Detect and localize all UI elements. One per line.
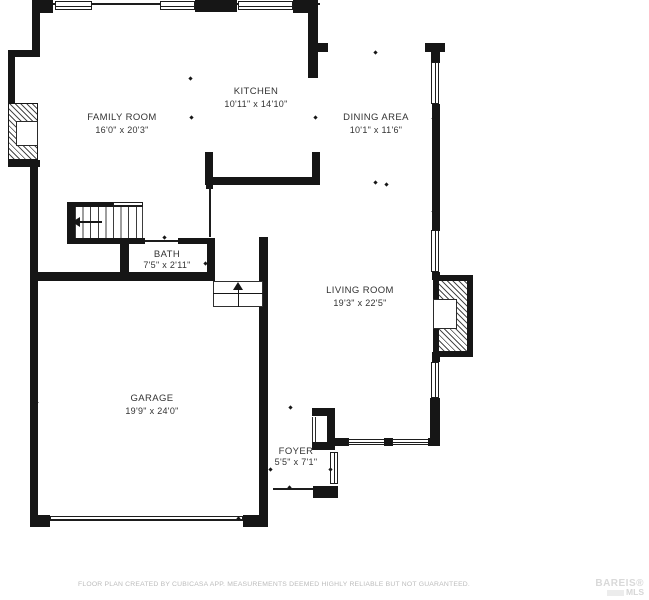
wall-stairs-bottom: [67, 238, 145, 244]
disclaimer-text: FLOOR PLAN CREATED BY CUBICASA APP. MEAS…: [78, 581, 470, 588]
room-name: GARAGE: [125, 392, 178, 405]
room-label-living-room: LIVING ROOM 19'3" x 22'5": [326, 284, 394, 310]
window-right-1: [431, 62, 439, 104]
room-name: BATH: [143, 249, 190, 260]
window-top-1: [55, 1, 92, 10]
dimension-tick: [373, 50, 377, 54]
room-name: FAMILY ROOM: [87, 111, 157, 124]
room-name: KITCHEN: [224, 85, 287, 98]
wall-right-mid-3: [432, 352, 440, 362]
fireplace-family-room-firebox: [16, 121, 38, 146]
room-dimensions: 19'3" x 22'5": [326, 297, 394, 310]
dimension-tick: [268, 467, 272, 471]
wall-left-lower: [30, 163, 38, 527]
closet-door: [312, 417, 316, 442]
wall-dining-top-stub: [318, 43, 328, 52]
room-divider-line: [209, 187, 211, 237]
watermark-mls: MLS: [626, 588, 644, 597]
dimension-tick: [384, 182, 388, 186]
wall-living-bottom-3: [428, 438, 440, 446]
room-label-bath: BATH 7'5" x 2'11": [143, 249, 190, 271]
wall-left-upper: [32, 0, 40, 53]
window-right-2: [431, 230, 439, 272]
garage-door: [50, 516, 243, 521]
room-label-garage: GARAGE 19'9" x 24'0": [125, 392, 178, 418]
wall-right-upper: [431, 43, 440, 63]
fireplace-living-room-firebox: [433, 299, 457, 329]
room-name: DINING AREA: [343, 111, 409, 124]
dimension-tick: [162, 235, 166, 239]
room-dimensions: 10'1" x 11'6": [343, 124, 409, 137]
wall-kitchen-counter-right: [312, 152, 320, 185]
floor-plan: FAMILY ROOM 16'0" x 20'3" KITCHEN 10'11"…: [0, 0, 649, 600]
room-label-foyer: FOYER 5'5" x 7'1": [275, 446, 318, 468]
mls-watermark: BAREIS® MLS: [595, 579, 644, 597]
room-dimensions: 10'11" x 14'10": [224, 98, 287, 111]
wall-top-mid: [195, 0, 237, 12]
window-bottom-1: [348, 439, 385, 445]
wall-bottom-left-corner: [30, 515, 50, 527]
wall-garage-top: [30, 272, 215, 281]
room-dimensions: 19'9" x 24'0": [125, 405, 178, 418]
window-right-3: [431, 362, 439, 398]
room-dimensions: 5'5" x 7'1": [275, 457, 318, 468]
dimension-tick: [313, 115, 317, 119]
room-dimensions: 7'5" x 2'11": [143, 260, 190, 271]
bath-door-opening: [145, 240, 180, 242]
wall-bath-right: [207, 238, 215, 272]
stairs-direction-arrow-icon: [72, 217, 80, 227]
room-name: LIVING ROOM: [326, 284, 394, 297]
wall-kitchen-counter: [205, 177, 320, 185]
window-top-3: [238, 1, 293, 10]
dimension-tick: [188, 76, 192, 80]
watermark-mls-row: MLS: [595, 588, 644, 597]
watermark-chip: [607, 590, 624, 596]
dimension-tick: [288, 405, 292, 409]
window-top-2: [160, 1, 195, 10]
window-bottom-2: [392, 439, 429, 445]
dimension-tick: [189, 115, 193, 119]
stairs-arrow-stem: [80, 221, 102, 223]
stairs-treads: [75, 207, 143, 238]
wall-bath-left: [120, 242, 129, 272]
room-label-kitchen: KITCHEN 10'11" x 14'10": [224, 85, 287, 111]
steps-arrow-stem: [238, 289, 240, 306]
dimension-tick: [373, 180, 377, 184]
room-name: FOYER: [275, 446, 318, 457]
foyer-entry-opening: [273, 488, 313, 490]
room-label-dining-area: DINING AREA 10'1" x 11'6": [343, 111, 409, 137]
room-dimensions: 16'0" x 20'3": [87, 124, 157, 137]
wall-living-bottom-1: [335, 438, 349, 446]
wall-foyer-corner: [313, 486, 338, 498]
wall-kitchen-right: [308, 2, 318, 78]
room-label-family-room: FAMILY ROOM 16'0" x 20'3": [87, 111, 157, 137]
